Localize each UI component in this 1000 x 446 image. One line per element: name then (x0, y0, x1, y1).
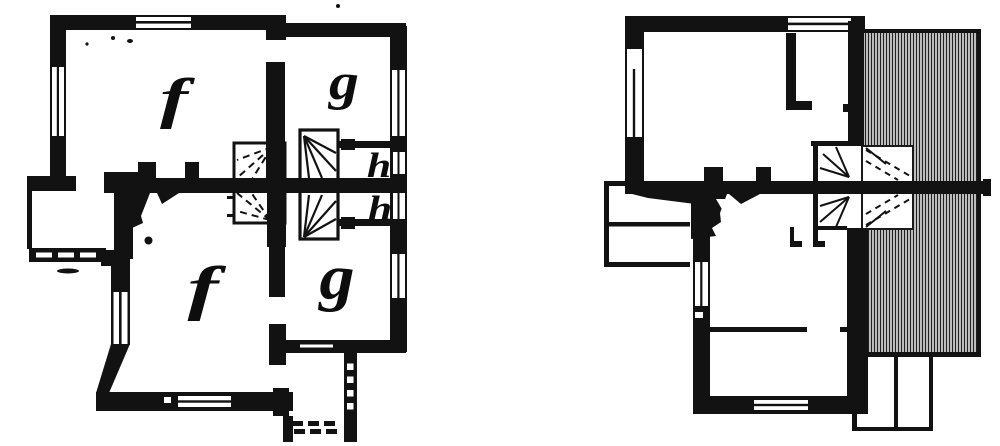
svg-text:h: h (368, 189, 392, 228)
svg-text:g: g (327, 54, 359, 112)
svg-text:g: g (317, 241, 354, 312)
svg-text:h: h (367, 146, 391, 185)
